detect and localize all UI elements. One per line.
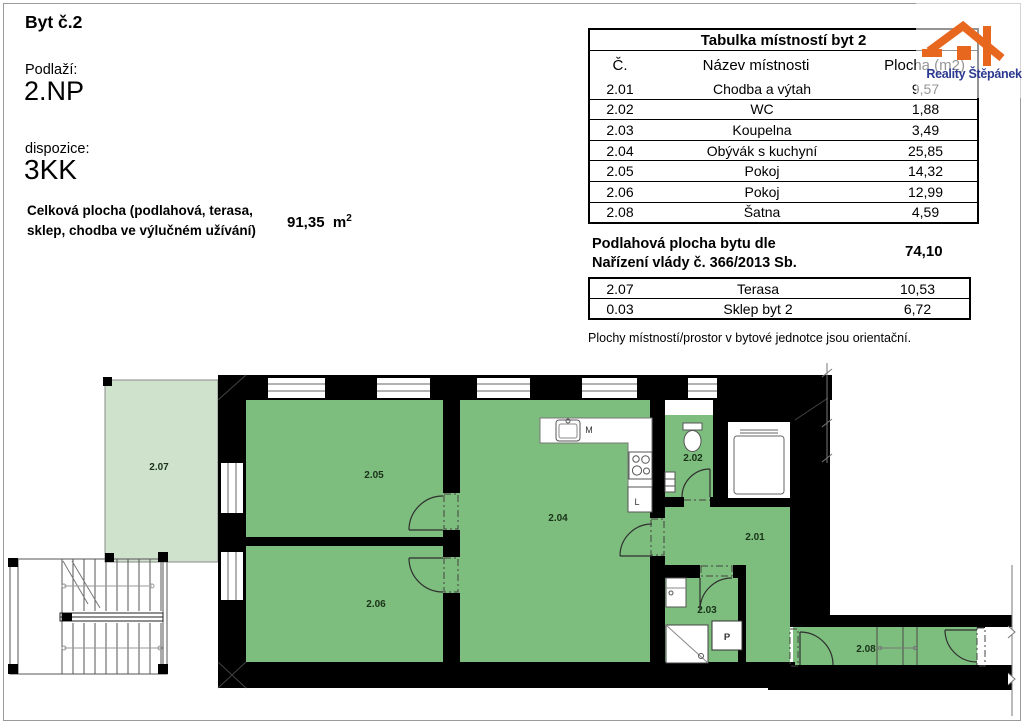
- washer-icon: P: [712, 621, 742, 650]
- elevator: [728, 422, 790, 498]
- staircase: [10, 559, 167, 674]
- col-header-number: Č.: [590, 57, 650, 74]
- table-row: 2.02 WC 1,88: [590, 99, 977, 120]
- toilet-bowl-icon: [684, 431, 701, 452]
- extra-area-table: 2.07 Terasa 10,53 0.03 Sklep byt 2 6,72: [588, 277, 971, 320]
- fridge-label: L: [634, 497, 639, 507]
- dishwasher-label: M: [585, 425, 593, 435]
- label-2-03: 2.03: [697, 605, 717, 616]
- label-2-02: 2.02: [683, 453, 703, 464]
- total-area-label-line2: sklep, chodba ve výlučném užívání): [27, 223, 256, 238]
- radiator-icon: [665, 472, 675, 492]
- exterior-door-gap: [985, 628, 1011, 665]
- washer-label: P: [724, 632, 731, 643]
- layout-value: 3KK: [24, 154, 77, 186]
- total-area-value: 91,35 m2: [287, 213, 352, 231]
- floor-value: 2.NP: [24, 76, 84, 107]
- room-2-01-south: [744, 560, 790, 670]
- brand-name: Reality Štěpánek: [924, 67, 1024, 81]
- room-2-08: [793, 620, 977, 668]
- label-2-04: 2.04: [548, 513, 568, 524]
- table-row: 0.03 Sklep byt 2 6,72: [590, 298, 969, 318]
- col-header-name: Název místnosti: [650, 57, 862, 74]
- fridge-icon: L: [628, 487, 652, 512]
- label-2-08: 2.08: [856, 644, 876, 655]
- kitchen-sink-icon: [556, 419, 580, 441]
- shower-icon: [666, 625, 708, 663]
- room-2-05: [236, 385, 460, 546]
- table-row: 2.07 Terasa 10,53: [590, 279, 969, 298]
- floor-plan: L M P: [0, 355, 1024, 724]
- table-row: 2.08 Šatna 4,59: [590, 202, 977, 223]
- floor-area-label-line2: Nařízení vlády č. 366/2013 Sb.: [592, 255, 797, 271]
- room-2-01: [663, 497, 790, 568]
- table-row: 2.06 Pokoj 12,99: [590, 181, 977, 202]
- table-row: 2.05 Pokoj 14,32: [590, 160, 977, 181]
- label-2-01: 2.01: [745, 532, 765, 543]
- table-row: 2.03 Koupelna 3,49: [590, 119, 977, 140]
- toilet-tank-icon: [683, 423, 702, 430]
- elevator-car-icon: [734, 436, 784, 494]
- floor-area-label-line1: Podlahová plocha bytu dle: [592, 236, 776, 252]
- room-2-06: [236, 537, 460, 670]
- label-2-05: 2.05: [364, 470, 384, 481]
- label-2-07: 2.07: [149, 462, 169, 473]
- label-2-06: 2.06: [366, 599, 386, 610]
- house-logo-icon: [916, 0, 1024, 98]
- brand-logo: Reality Štěpánek: [916, 0, 1024, 98]
- table-row: 2.04 Obývák s kuchyní 25,85: [590, 140, 977, 161]
- apartment-title: Byt č.2: [25, 12, 82, 33]
- floor-area-value: 74,10: [905, 243, 943, 260]
- disclaimer-note: Plochy místností/prostor v bytové jednot…: [588, 331, 911, 345]
- washbasin-icon: [666, 578, 686, 607]
- total-area-label-line1: Celková plocha (podlahová, terasa,: [27, 203, 253, 218]
- total-area-label: Celková plocha (podlahová, terasa, sklep…: [27, 201, 289, 240]
